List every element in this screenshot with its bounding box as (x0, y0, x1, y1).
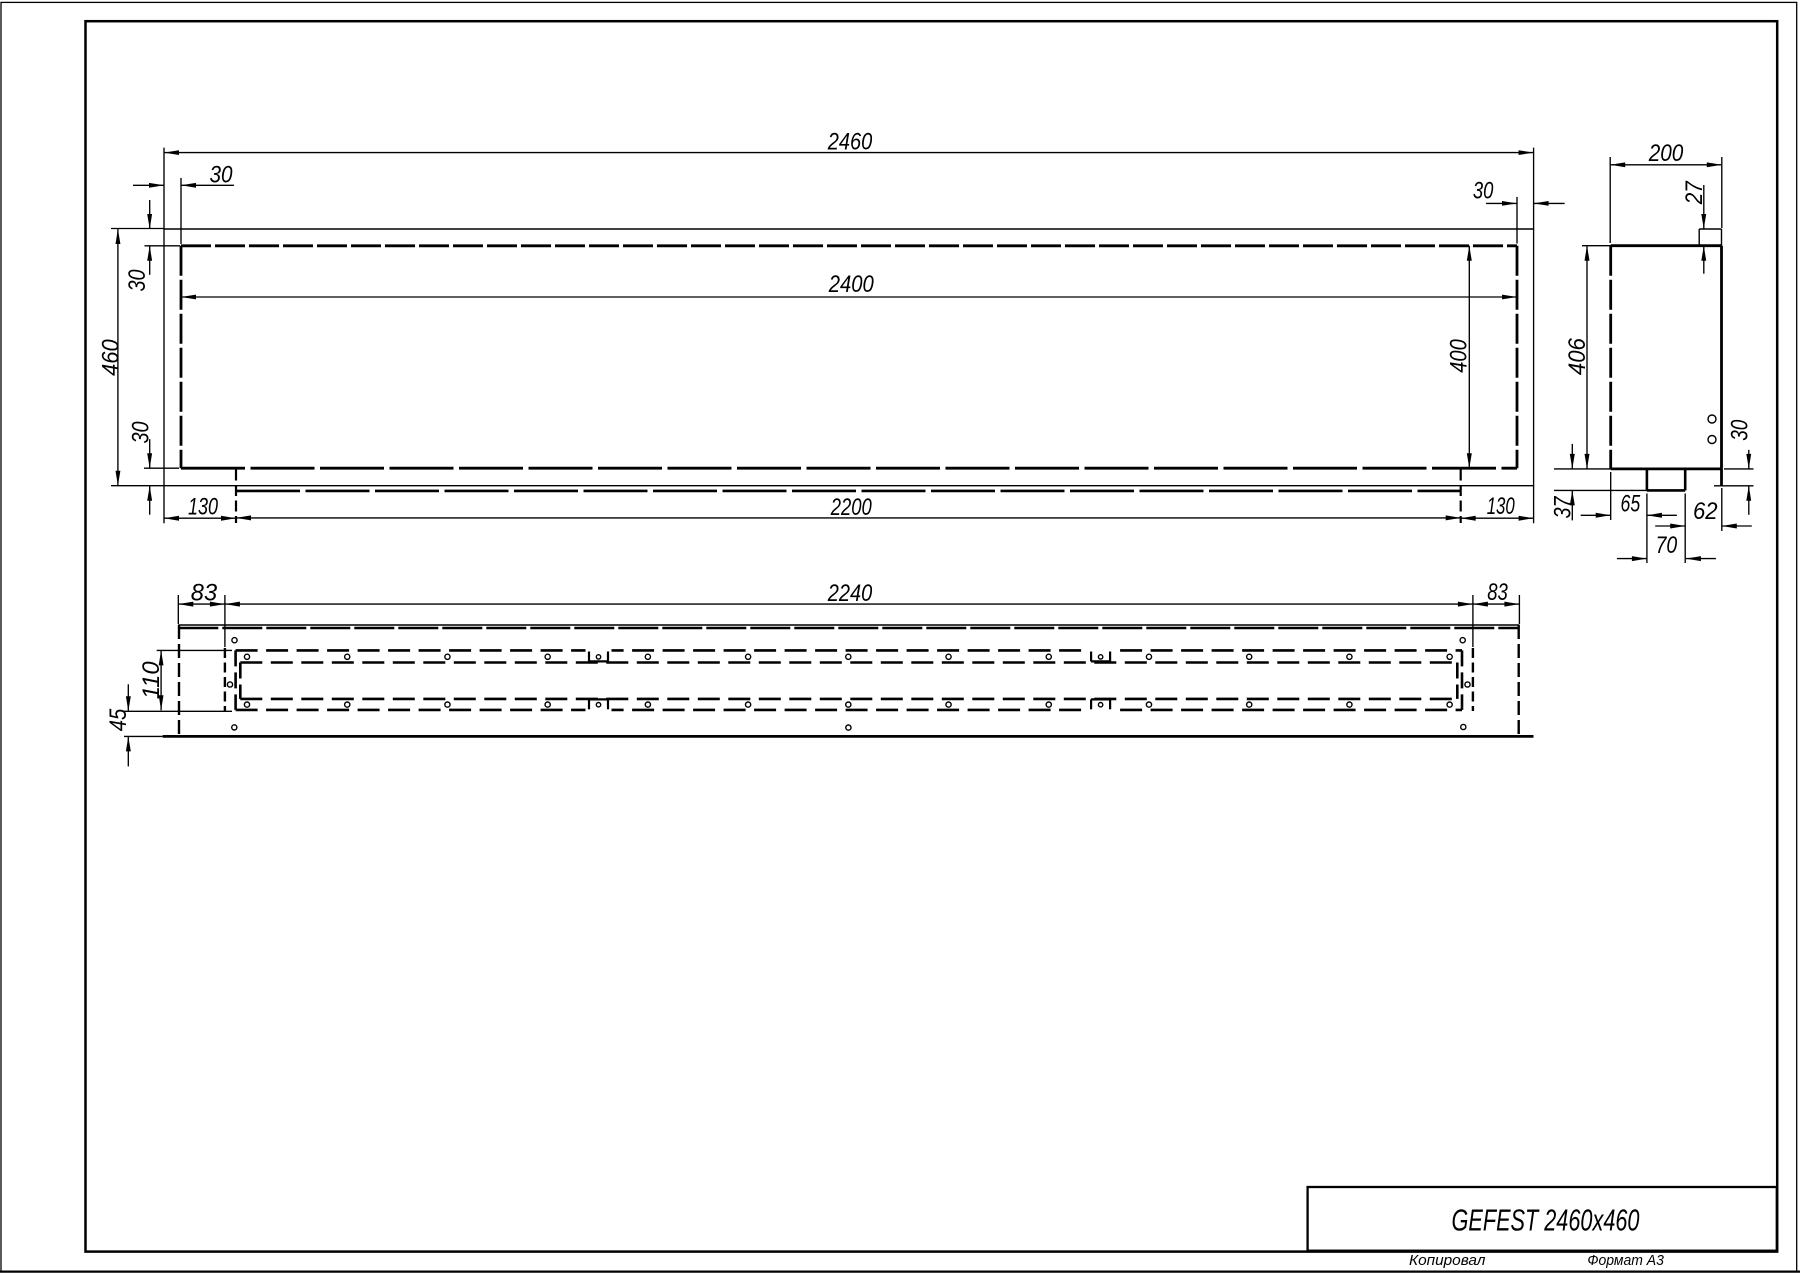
svg-text:110: 110 (138, 661, 165, 700)
svg-text:30: 30 (128, 421, 155, 444)
svg-text:Копировал: Копировал (1409, 1253, 1486, 1269)
svg-text:45: 45 (105, 708, 132, 731)
svg-text:GEFEST 2460x460: GEFEST 2460x460 (1452, 1203, 1640, 1238)
svg-text:2240: 2240 (827, 580, 873, 607)
svg-text:460: 460 (98, 339, 125, 376)
svg-text:2400: 2400 (828, 271, 874, 298)
svg-text:2200: 2200 (830, 494, 872, 521)
svg-text:70: 70 (1656, 532, 1678, 559)
svg-text:83: 83 (191, 579, 218, 606)
svg-text:62: 62 (1693, 498, 1718, 525)
svg-text:400: 400 (1446, 339, 1473, 373)
svg-text:130: 130 (188, 494, 218, 521)
svg-text:2460: 2460 (827, 129, 873, 156)
svg-text:30: 30 (210, 162, 234, 189)
svg-text:83: 83 (1487, 579, 1508, 606)
svg-text:37: 37 (1549, 495, 1576, 518)
svg-text:30: 30 (124, 269, 151, 292)
svg-text:Формат А3: Формат А3 (1587, 1253, 1664, 1269)
svg-text:30: 30 (1726, 419, 1753, 441)
svg-text:200: 200 (1648, 140, 1684, 167)
svg-text:406: 406 (1564, 338, 1591, 376)
svg-text:30: 30 (1473, 177, 1494, 204)
svg-text:65: 65 (1621, 491, 1641, 518)
svg-text:130: 130 (1487, 493, 1515, 520)
